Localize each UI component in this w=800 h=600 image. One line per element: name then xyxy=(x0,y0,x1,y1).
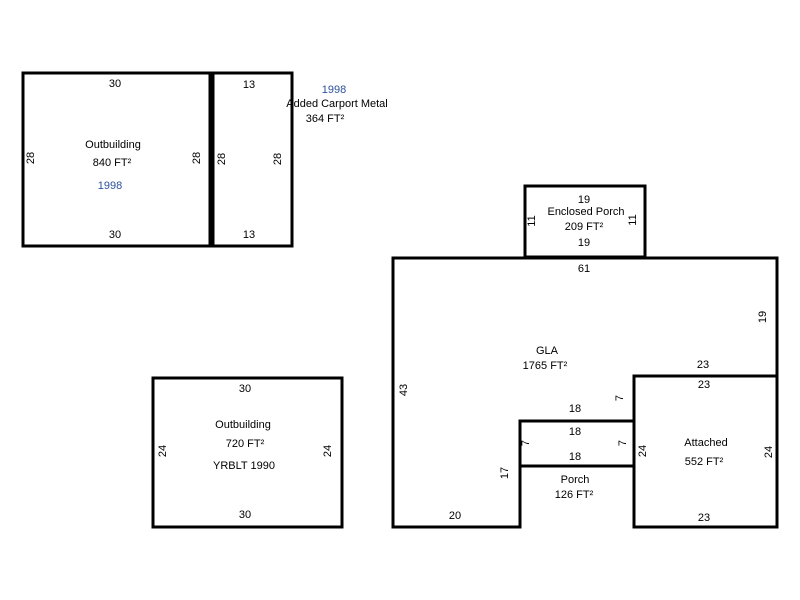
attached-outline xyxy=(634,376,777,527)
enclosed-porch-dim-bottom: 19 xyxy=(578,237,590,249)
gla-dim-left: 43 xyxy=(398,384,410,396)
outbuilding2-year-built: YRBLT 1990 xyxy=(213,460,275,472)
porch-dim-right: 7 xyxy=(617,440,629,446)
enclosed-porch-area: 209 FT² xyxy=(565,221,604,233)
outbuilding2-name: Outbuilding xyxy=(215,419,271,431)
gla-dim-bottom: 20 xyxy=(449,510,461,522)
attached-dim-bottom: 23 xyxy=(698,512,710,524)
gla-dim-step7: 7 xyxy=(614,395,626,401)
enclosed-porch-name: Enclosed Porch xyxy=(547,206,624,218)
outbuilding2-dim-bottom: 30 xyxy=(239,509,251,521)
gla-dim-step23: 23 xyxy=(697,359,709,371)
outbuilding2-outline xyxy=(153,378,342,527)
sketch-shapes xyxy=(0,0,800,600)
outbuilding1-dim-right: 28 xyxy=(191,152,203,164)
porch-area: 126 FT² xyxy=(555,489,594,501)
outbuilding1-dim-top: 30 xyxy=(109,78,121,90)
porch-dim-top: 18 xyxy=(569,426,581,438)
attached-dim-left: 24 xyxy=(637,445,649,457)
outbuilding1-area: 840 FT² xyxy=(93,157,132,169)
carport-dim-bottom: 13 xyxy=(243,229,255,241)
carport-dim-left: 28 xyxy=(216,153,228,165)
gla-outline xyxy=(393,258,777,527)
property-sketch-canvas: 30 28 28 Outbuilding 840 FT² 1998 30 13 … xyxy=(0,0,800,600)
porch-dim-left: 7 xyxy=(520,440,532,446)
carport-note-year: 1998 xyxy=(322,84,346,96)
enclosed-porch-dim-right: 11 xyxy=(627,214,639,225)
outbuilding2-area: 720 FT² xyxy=(226,438,265,450)
outbuilding1-dim-bottom: 30 xyxy=(109,229,121,241)
carport-dim-top: 13 xyxy=(243,79,255,91)
gla-dim-top: 61 xyxy=(578,263,590,275)
gla-dim-step18: 18 xyxy=(569,403,581,415)
enclosed-porch-dim-left: 11 xyxy=(526,215,538,226)
outbuilding1-name: Outbuilding xyxy=(85,139,141,151)
porch-dim-bottom: 18 xyxy=(569,451,581,463)
gla-dim-step17: 17 xyxy=(499,467,511,479)
attached-dim-right: 24 xyxy=(763,446,775,458)
outbuilding2-dim-left: 24 xyxy=(157,445,169,457)
enclosed-porch-dim-top: 19 xyxy=(578,194,590,206)
gla-dim-right: 19 xyxy=(757,311,769,323)
attached-area: 552 FT² xyxy=(685,456,724,468)
gla-area: 1765 FT² xyxy=(523,360,568,372)
outbuilding2-dim-top: 30 xyxy=(239,383,251,395)
carport-dim-right: 28 xyxy=(272,153,284,165)
gla-name: GLA xyxy=(536,345,558,357)
outbuilding2-dim-right: 24 xyxy=(322,445,334,457)
attached-dim-top: 23 xyxy=(698,379,710,391)
carport-note-area: 364 FT² xyxy=(306,113,345,125)
porch-name: Porch xyxy=(561,474,590,486)
outbuilding1-year-built: 1998 xyxy=(98,180,122,192)
attached-name: Attached xyxy=(684,437,727,449)
carport-note-name: Added Carport Metal xyxy=(286,98,388,110)
outbuilding1-dim-left: 28 xyxy=(25,152,37,164)
